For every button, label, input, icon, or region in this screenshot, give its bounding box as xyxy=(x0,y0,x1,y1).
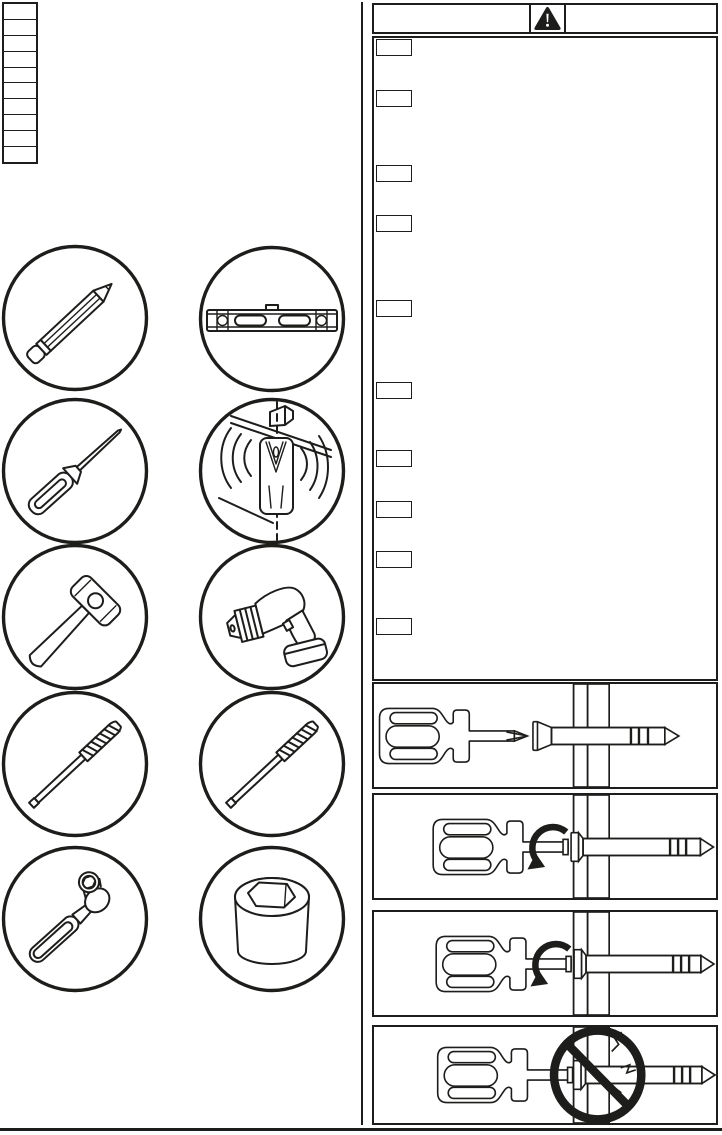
hammer-icon xyxy=(0,542,150,692)
position-screw-with-screwdriver-illustration xyxy=(374,684,716,787)
language-table-cell xyxy=(4,4,36,20)
drill-bit-icon xyxy=(197,689,347,839)
power-drill-icon xyxy=(197,542,347,692)
language-note-box xyxy=(376,382,412,399)
tool-circle-pencil xyxy=(0,243,150,393)
tool-circle-drill-bit-2 xyxy=(197,689,347,839)
drive-screw-flush-illustration xyxy=(374,912,716,1015)
tool-circle-hammer xyxy=(0,542,150,692)
language-note-box xyxy=(376,501,412,518)
manual-page xyxy=(0,0,722,1135)
language-table-cell xyxy=(4,131,36,147)
tool-circle-drill-bit-1 xyxy=(0,689,150,839)
warning-header-right-cell xyxy=(566,5,716,32)
step-4-panel xyxy=(372,1025,718,1125)
step-3-panel xyxy=(372,910,718,1017)
tool-circle-level xyxy=(197,244,347,394)
tool-circle-drill xyxy=(197,542,347,692)
tool-circle-stud-finder xyxy=(197,396,347,546)
language-note-box xyxy=(376,90,412,107)
language-table-cell xyxy=(4,36,36,52)
language-note-box xyxy=(376,300,412,317)
language-note-box xyxy=(376,165,412,182)
warning-header-left-cell xyxy=(374,5,531,32)
language-table-cell xyxy=(4,83,36,99)
pencil-icon xyxy=(0,243,150,393)
page-bottom-rule xyxy=(0,1128,722,1131)
language-table-cell xyxy=(4,20,36,36)
column-divider xyxy=(361,2,363,1125)
spirit-level-icon xyxy=(197,244,347,394)
language-table-cell xyxy=(4,115,36,131)
step-2-panel xyxy=(372,793,718,900)
ratchet-wrench-icon xyxy=(0,844,150,994)
language-table-cell xyxy=(4,147,36,162)
awl-icon xyxy=(0,396,150,546)
language-note-box xyxy=(376,551,412,568)
language-note-box xyxy=(376,450,412,467)
language-note-box xyxy=(376,39,412,56)
tool-circle-ratchet xyxy=(0,844,150,994)
step-1-panel xyxy=(372,682,718,789)
language-table-cell xyxy=(4,99,36,115)
warning-header xyxy=(372,3,718,34)
warning-header-icon-cell xyxy=(531,5,566,32)
warning-notes-box xyxy=(372,36,718,681)
language-table-cell xyxy=(4,68,36,84)
stud-finder-icon xyxy=(197,396,347,546)
language-note-box xyxy=(376,215,412,232)
language-table-cell xyxy=(4,52,36,68)
language-code-table xyxy=(2,2,38,164)
tool-circle-socket xyxy=(197,844,347,994)
do-not-overtighten-screw-illustration xyxy=(374,1027,716,1123)
hex-socket-icon xyxy=(197,844,347,994)
drive-screw-into-wall-illustration xyxy=(374,795,716,898)
drill-bit-icon xyxy=(0,689,150,839)
language-note-box xyxy=(376,618,412,635)
warning-triangle-icon xyxy=(534,6,561,31)
tool-circle-awl xyxy=(0,396,150,546)
